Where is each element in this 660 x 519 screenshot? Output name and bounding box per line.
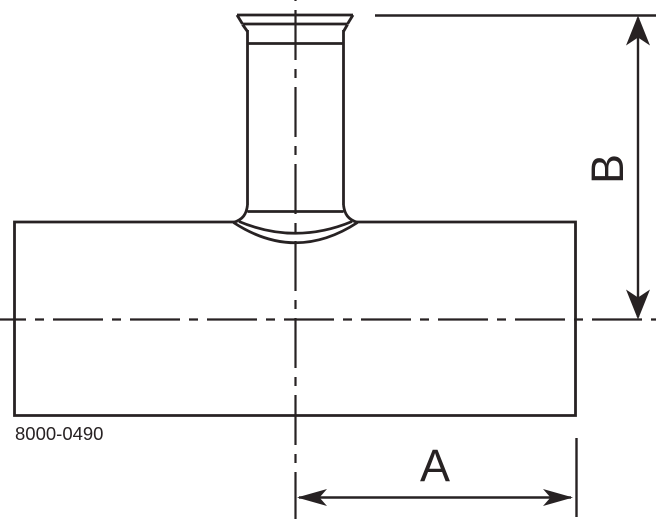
reducing-tee-technical-drawing: B A 8000-0490	[0, 0, 660, 519]
drawing-canvas: B A 8000-0490	[0, 0, 660, 519]
dimension-b: B	[375, 16, 656, 320]
dimension-b-label: B	[582, 154, 633, 184]
saddle-flare-right	[344, 205, 358, 223]
dimension-a-label: A	[420, 440, 450, 491]
part-number: 8000-0490	[15, 423, 103, 444]
saddle-flare-left	[234, 205, 248, 223]
dimension-a: A	[297, 438, 577, 517]
